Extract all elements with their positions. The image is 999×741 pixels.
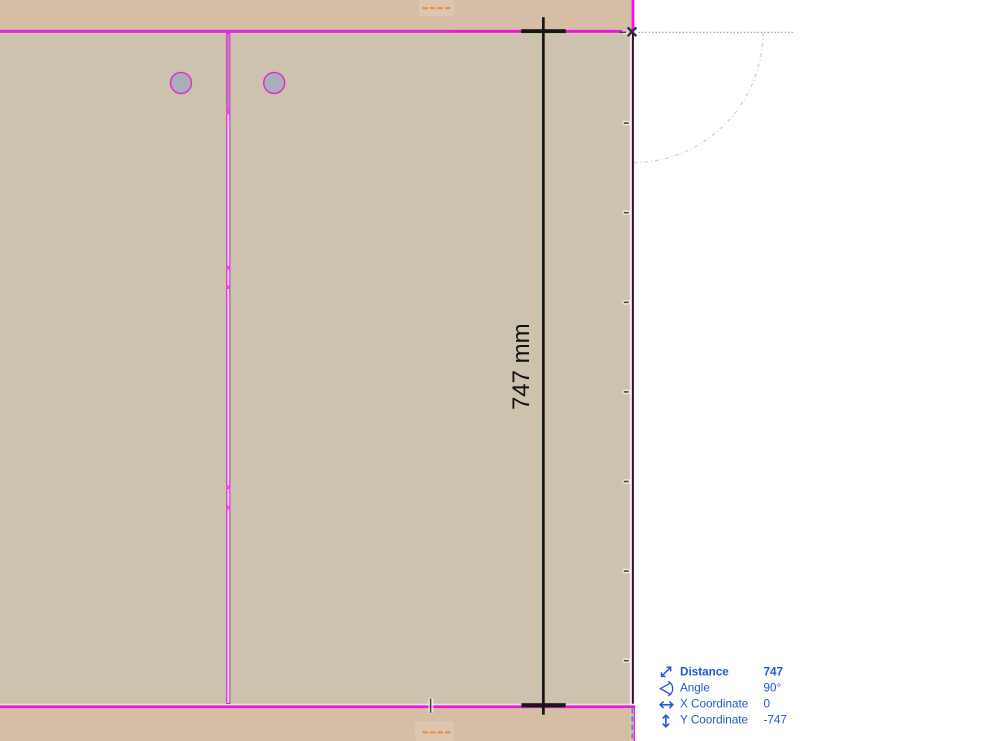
svg-text:Distance: Distance	[680, 666, 729, 679]
svg-text:90°: 90°	[764, 681, 782, 694]
svg-text:0: 0	[764, 697, 771, 710]
svg-text:X Coordinate: X Coordinate	[680, 697, 748, 710]
svg-text:-747: -747	[764, 713, 787, 726]
svg-text:Y Coordinate: Y Coordinate	[680, 713, 748, 726]
svg-text:747 mm: 747 mm	[508, 323, 535, 410]
svg-text:747: 747	[764, 666, 784, 679]
svg-text:Angle: Angle	[680, 681, 710, 694]
